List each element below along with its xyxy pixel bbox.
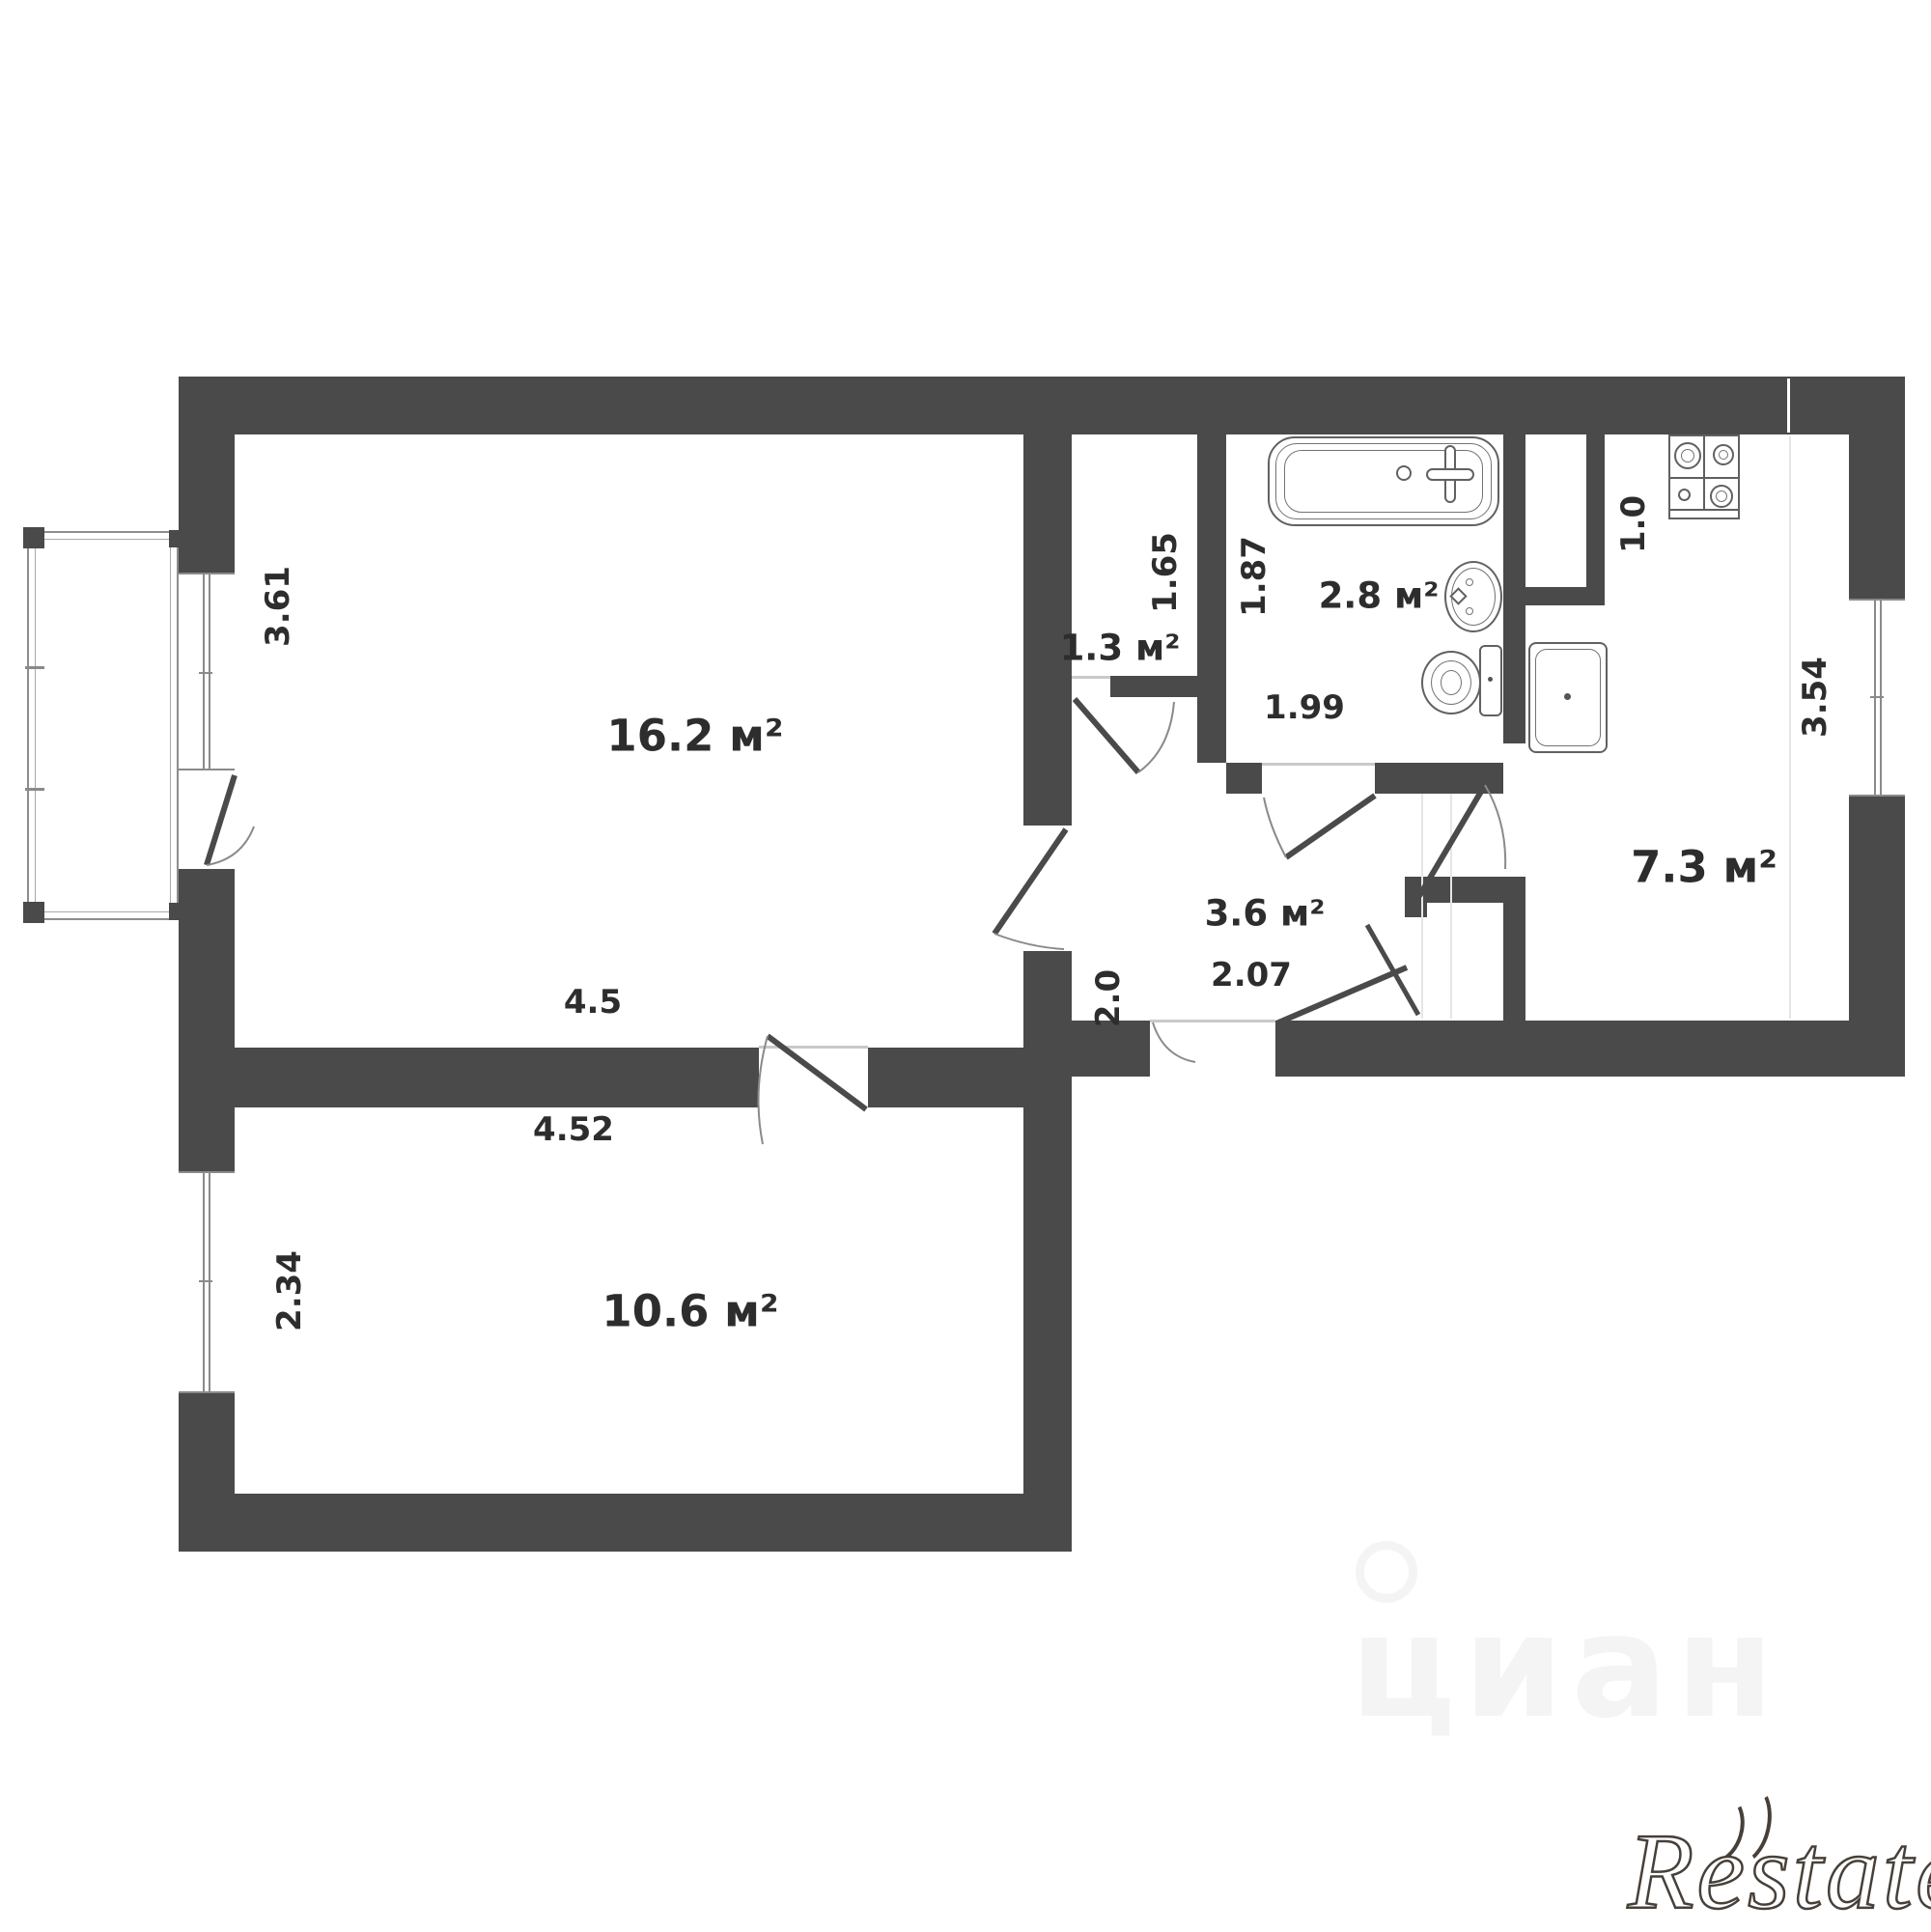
kitchen-door-leaf-alt <box>1367 925 1418 1015</box>
bedroom-door-leaf <box>768 1036 866 1109</box>
hallway-area-label: 3.6 м² <box>1205 896 1326 932</box>
closet-door-arc <box>1138 702 1174 772</box>
bathroom-door-arc <box>1264 798 1286 857</box>
closet-area-label: 1.3 м² <box>1060 630 1181 666</box>
dim-bedroom-width: 4.52 <box>533 1113 614 1146</box>
dim-bedroom-window: 2.34 <box>273 1250 306 1331</box>
dim-kitchen-shaft: 1.0 <box>1617 495 1650 553</box>
entrance-door-leaf <box>1276 967 1407 1023</box>
bedroom-area-label: 10.6 м² <box>602 1290 778 1333</box>
dim-bathroom-depth: 1.87 <box>1238 536 1271 617</box>
kitchen-door-arc <box>1485 785 1505 869</box>
kitchen-door-leaf <box>1419 785 1485 896</box>
entrance-door-arc <box>1153 1022 1195 1062</box>
restate-watermark-text: Restate <box>1628 1813 1931 1932</box>
dim-hallway-passage: 2.0 <box>1092 969 1125 1027</box>
dim-hallway-width: 2.07 <box>1211 959 1292 992</box>
dim-closet-depth: 1.65 <box>1149 532 1182 613</box>
cian-watermark-text: циан <box>1350 1595 1782 1738</box>
floor-plan-image: { "plan": { "rooms": [ {"name": "living-… <box>0 0 1931 1931</box>
bedroom-door-arc <box>759 1036 768 1144</box>
dim-kitchen-depth: 3.54 <box>1799 657 1832 738</box>
living-room-door-leaf <box>994 829 1066 934</box>
living-room-area-label: 16.2 м² <box>606 714 783 758</box>
dim-living-width: 4.5 <box>564 986 622 1019</box>
dim-bathroom-width: 1.99 <box>1264 691 1345 724</box>
bathroom-door-leaf <box>1286 796 1375 857</box>
kitchen-area-label: 7.3 м² <box>1631 846 1777 889</box>
apartment-floor-plan: 16.2 м² 10.6 м² 1.3 м² 2.8 м² 7.3 м² 3.6… <box>0 0 1931 1931</box>
closet-door-leaf <box>1075 699 1138 772</box>
bathroom-area-label: 2.8 м² <box>1319 578 1440 614</box>
balcony-door-leaf <box>207 775 235 865</box>
living-room-door-arc <box>994 934 1064 949</box>
dim-living-depth: 3.61 <box>262 566 294 647</box>
